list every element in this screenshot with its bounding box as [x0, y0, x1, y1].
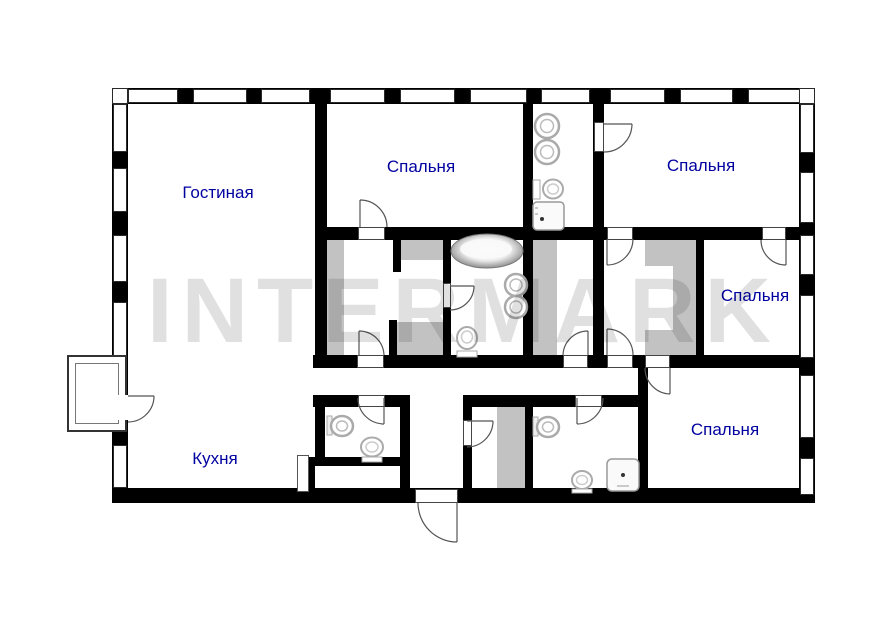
wall-bottom	[112, 488, 815, 503]
wall	[525, 395, 533, 488]
window	[193, 89, 247, 103]
window	[800, 458, 814, 495]
door-threshold	[563, 355, 588, 368]
room-label-bedroom-3: Спальня	[721, 286, 789, 306]
window	[113, 302, 127, 358]
window	[610, 89, 665, 103]
door-threshold	[607, 227, 633, 240]
window	[330, 89, 385, 103]
window	[113, 235, 127, 282]
door-threshold	[762, 227, 786, 240]
window	[541, 89, 590, 103]
window	[800, 235, 814, 275]
window	[800, 172, 814, 223]
door-threshold	[645, 355, 670, 368]
wall	[463, 395, 640, 407]
floorplan: Гостиная Спальня Спальня Спальня Спальня…	[0, 0, 885, 632]
toilet-icon	[457, 327, 477, 357]
door-arc	[360, 200, 387, 227]
wardrobe	[401, 240, 443, 260]
balcony-door-opening	[112, 395, 128, 420]
door-arc	[450, 286, 474, 310]
wall	[313, 457, 410, 466]
wardrobe	[327, 240, 344, 355]
door-threshold	[575, 395, 602, 407]
window	[680, 89, 733, 103]
door-arc	[563, 331, 588, 355]
window	[113, 445, 127, 488]
entrance-door-arc	[418, 503, 457, 542]
window	[800, 295, 814, 358]
window	[800, 104, 814, 153]
wall	[696, 237, 704, 357]
wardrobe	[645, 330, 696, 355]
window	[400, 89, 455, 103]
door-arc	[128, 396, 154, 422]
window	[748, 89, 800, 103]
window	[112, 88, 128, 104]
door-threshold	[358, 227, 385, 240]
room-label-bedroom-1: Спальня	[387, 157, 455, 177]
room-label-bedroom-4: Спальня	[691, 420, 759, 440]
shower-tray-icon	[533, 202, 564, 230]
window	[128, 89, 178, 103]
room-label-living: Гостиная	[182, 183, 253, 203]
sink-icon	[535, 140, 559, 164]
window	[113, 168, 127, 212]
sink-icon	[533, 417, 559, 437]
door-threshold	[607, 355, 633, 368]
wall	[400, 395, 410, 488]
door-leaf	[594, 122, 604, 152]
door-arc	[604, 124, 632, 152]
wardrobe	[533, 240, 557, 355]
wall-stub	[389, 320, 397, 357]
door-threshold	[358, 395, 385, 407]
wall	[638, 355, 648, 490]
wardrobe	[497, 407, 525, 488]
window	[470, 89, 527, 103]
wall	[315, 395, 325, 466]
entrance-threshold	[415, 489, 458, 503]
window	[799, 88, 815, 104]
watermark: INTERMARK	[112, 256, 815, 366]
toilet-icon	[533, 180, 563, 200]
window	[113, 104, 127, 152]
wardrobe	[397, 322, 443, 355]
door-arc	[359, 331, 384, 355]
shower-tray-icon	[607, 459, 639, 491]
door-arc	[761, 240, 786, 265]
window	[261, 89, 310, 103]
door-arc	[645, 368, 670, 394]
door-arc	[607, 329, 633, 355]
sink-icon	[535, 114, 559, 138]
door-leaf	[463, 420, 472, 446]
sink-icon	[327, 416, 353, 436]
window	[800, 375, 814, 438]
door-threshold	[357, 355, 384, 368]
room-label-bedroom-2: Спальня	[667, 156, 735, 176]
wall-stub	[393, 237, 401, 272]
wall	[315, 227, 815, 240]
door-leaf	[443, 283, 451, 308]
utility-shaft	[297, 455, 309, 492]
door-arc	[607, 239, 633, 265]
room-label-kitchen: Кухня	[192, 449, 238, 469]
